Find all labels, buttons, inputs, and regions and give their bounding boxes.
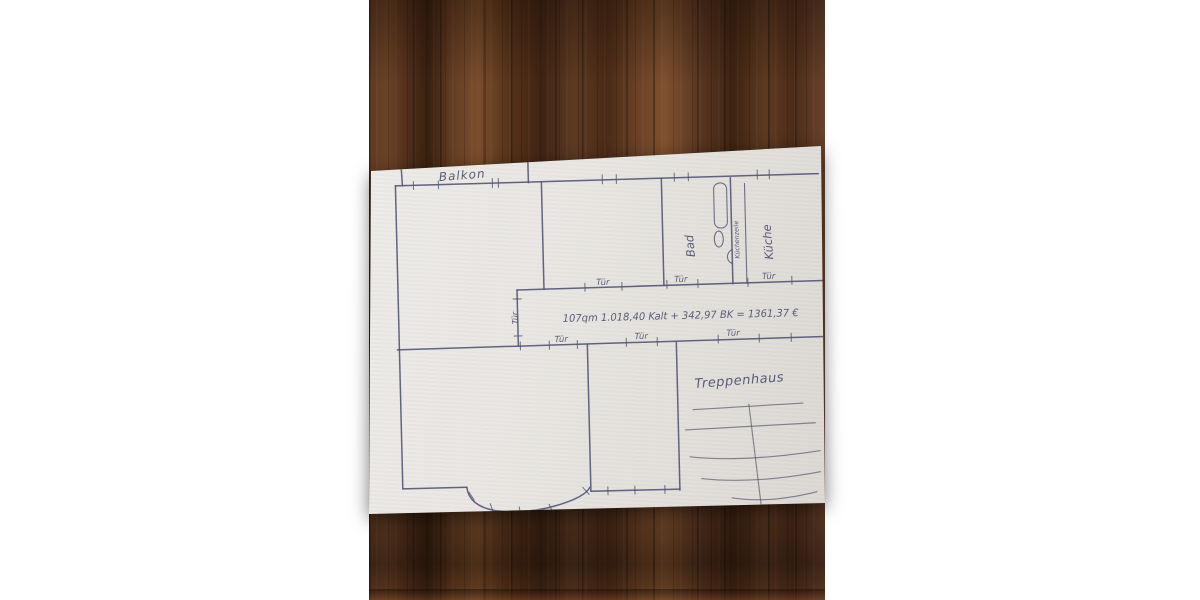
door-label: Tür <box>674 275 688 285</box>
paper-shadow: Balkon Tür Tür Tür Tür Tür Tür Tür Bad K… <box>369 0 825 600</box>
bathroom-label: Bad <box>682 234 698 258</box>
door-label: Tür <box>554 335 568 345</box>
balcony-label: Balkon <box>438 167 486 185</box>
screenshot-canvas: Balkon Tür Tür Tür Tür Tür Tür Tür Bad K… <box>0 0 1200 600</box>
door-label-rotated: Tür <box>511 311 520 324</box>
kitchen-label: Küche <box>760 224 777 260</box>
door-label: Tür <box>762 272 776 282</box>
wood-table-photo: Balkon Tür Tür Tür Tür Tür Tür Tür Bad K… <box>369 0 825 600</box>
stairs <box>685 403 822 519</box>
door-label: Tür <box>596 278 610 288</box>
stairwell-label: Treppenhaus <box>694 370 785 392</box>
sink-icon <box>714 231 723 247</box>
bay-window-curve <box>467 484 591 512</box>
door-label: Tür <box>726 329 740 339</box>
rent-note: 107qm 1.018,40 Kalt + 342,97 BK = 1361,3… <box>563 307 800 325</box>
walls <box>393 149 825 515</box>
floor-plan-drawing: Balkon Tür Tür Tür Tür Tür Tür Tür Bad K… <box>369 0 825 600</box>
bathroom-fixtures <box>713 183 732 264</box>
kitchenette-label: Küchenzeile <box>733 220 742 258</box>
door-label: Tür <box>634 332 648 342</box>
sketch-paper: Balkon Tür Tür Tür Tür Tür Tür Tür Bad K… <box>369 0 825 600</box>
bathtub-icon <box>713 183 727 228</box>
